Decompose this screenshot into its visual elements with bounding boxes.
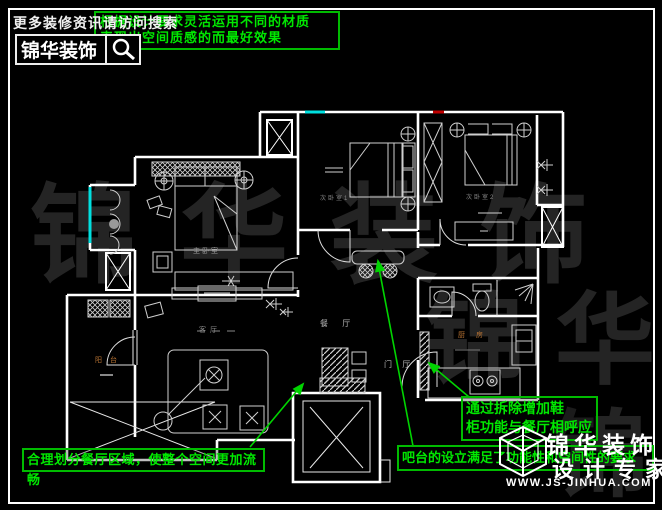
search-icon <box>107 36 139 63</box>
plant-icon <box>537 159 553 196</box>
ceiling-lamp-icon <box>235 171 253 189</box>
annotation-arrows <box>250 261 469 447</box>
promo-text: 更多装修资讯请访问搜索 <box>13 13 178 33</box>
plant-icon <box>266 298 293 317</box>
ceiling-lamp-icon <box>401 127 415 141</box>
ceiling-lamp-icon <box>450 123 464 137</box>
page-canvas: 锦华装饰 锦华装饰 锦华装饰 <box>0 0 662 510</box>
cube-logo-icon <box>496 424 550 480</box>
search-button[interactable] <box>105 36 139 63</box>
room-label-dining: 餐 厅 <box>320 320 356 328</box>
note-shoe-line1: 通过拆除增加鞋 <box>466 399 596 418</box>
brand-search-bar[interactable]: 锦华装饰 <box>15 34 141 65</box>
room-label-living: 客厅 <box>199 327 221 334</box>
note-dining-area: 合理划分餐厅区域，使整个空间更加流畅 <box>22 448 265 472</box>
ceiling-lamp-icon <box>155 172 173 190</box>
room-label-balcony: 阳台 <box>95 357 125 364</box>
room-label-foyer: 门 厅 <box>384 361 414 369</box>
room-label-master: 主卧室 <box>193 248 220 255</box>
footer-logo: 锦华装饰 设计专家 WWW.JS-JINHUA.COM <box>494 420 662 500</box>
room-label-kitchen: 厨房 <box>458 332 494 339</box>
room-label-bedroom2: 次卧室1 <box>320 196 349 202</box>
ceiling-lamp-icon <box>401 197 415 211</box>
room-label-bedroom3: 次卧室2 <box>466 195 495 201</box>
brand-logo-text: 锦华装饰 <box>17 36 105 63</box>
ceiling-lamp-icon <box>517 123 531 137</box>
footer-website-url[interactable]: WWW.JS-JINHUA.COM <box>506 477 652 489</box>
